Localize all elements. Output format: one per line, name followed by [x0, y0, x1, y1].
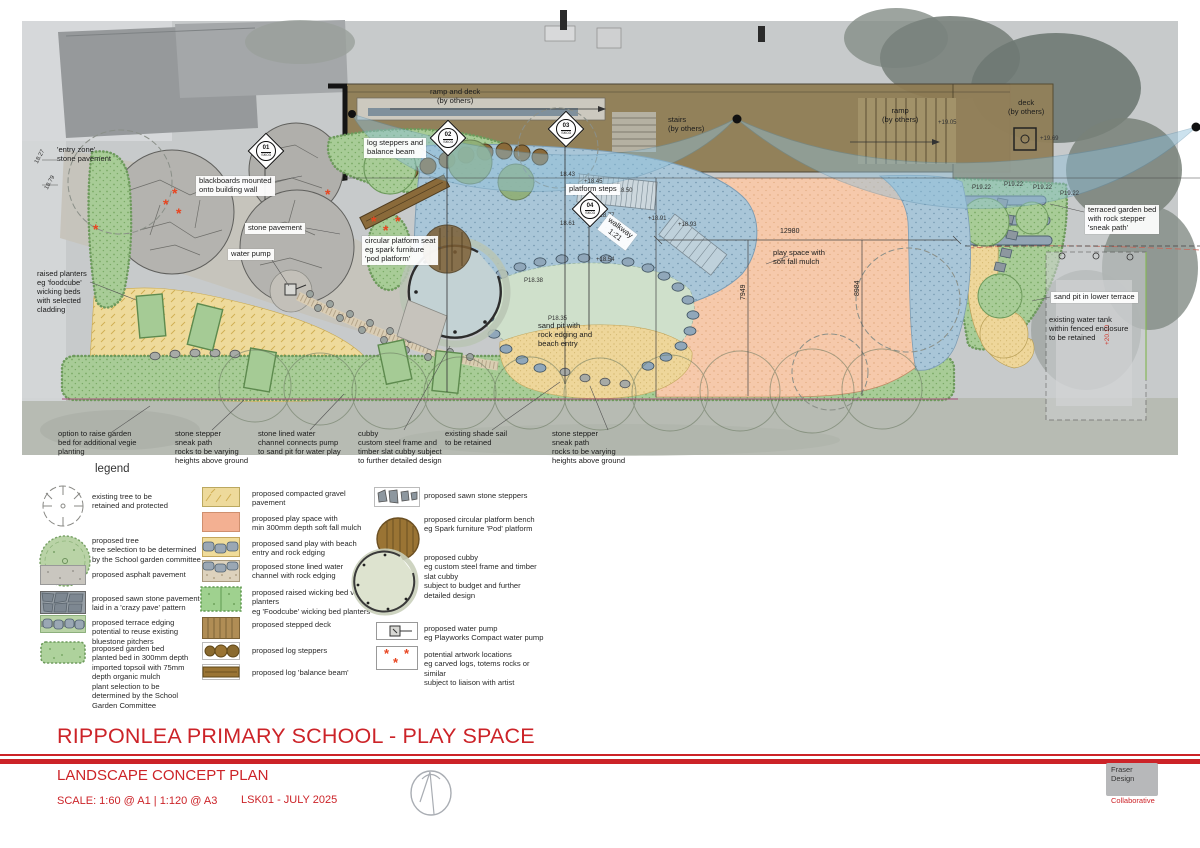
label-terraced-garden-bed: terraced garden bed with rock stepper 's…	[1085, 205, 1159, 234]
label-raised-planters: raised planters eg 'foodcube' wicking be…	[37, 270, 87, 315]
label-water-channel: stone lined water channel connects pump …	[258, 430, 341, 457]
legend-item-text: proposed water pump eg Playworks Compact…	[424, 624, 543, 643]
legend-water-pump-icon	[376, 622, 418, 645]
spot-level: +18.93	[678, 222, 697, 228]
label-entry-zone: 'entry zone' stone pavement	[57, 146, 111, 164]
legend-wicking-bed-icon	[200, 586, 242, 617]
spot-level: +18.54	[596, 257, 615, 263]
legend-log-steppers-icon	[202, 642, 240, 665]
spot-level: +18.91	[648, 216, 667, 222]
legend-asphalt-icon	[40, 565, 86, 590]
legend-item-text: proposed log 'balance beam'	[252, 668, 349, 677]
spot-level: P19.22	[1004, 182, 1023, 188]
title-rule-thick	[0, 759, 1200, 765]
label-stairs: stairs (by others)	[668, 116, 704, 134]
artwork-location-icon: *	[325, 187, 330, 201]
dimension-depth-right: 8984	[854, 280, 861, 296]
logo-line3: Collaborative	[1111, 796, 1155, 805]
legend-stepped-deck-icon	[202, 617, 240, 644]
title-rule-thin	[0, 754, 1200, 756]
artwork-location-icon: *	[383, 223, 388, 237]
legend-item-text: proposed sand play with beach entry and …	[252, 539, 357, 558]
label-water-pump: water pump	[228, 249, 274, 260]
water-pump-symbol	[285, 284, 296, 295]
artwork-location-icon: *	[395, 214, 400, 228]
label-deck-right: deck (by others)	[1008, 99, 1044, 117]
legend-item-text: proposed circular platform bench eg Spar…	[424, 515, 535, 534]
legend-item-text: proposed sawn stone pavement laid in a '…	[92, 594, 200, 613]
legend-heading: legend	[95, 463, 130, 475]
legend-artwork-icon: * * *	[376, 646, 418, 675]
legend-balance-beam-icon	[202, 664, 240, 685]
legend-item-text: proposed log steppers	[252, 646, 327, 655]
plan-sheet: 'entry zone' stone pavement blackboards …	[0, 0, 1200, 848]
dimension-depth-left: 7949	[740, 284, 747, 300]
scale-text: SCALE: 1:60 @ A1 | 1:120 @ A3	[57, 795, 217, 807]
legend-item-text: proposed asphalt pavement	[92, 570, 186, 579]
spot-level: +19.05	[938, 120, 957, 126]
legend-water-channel-icon	[202, 560, 240, 587]
legend-item-text: potential artwork locations eg carved lo…	[424, 650, 530, 688]
legend-item-text: proposed play space with min 300mm depth…	[252, 514, 361, 533]
spot-level: +19.69	[1040, 136, 1059, 142]
spot-level: P19.22	[1060, 191, 1079, 197]
label-sneak-path-1: stone stepper sneak path rocks to be var…	[175, 430, 248, 466]
north-arrow-icon	[408, 768, 454, 816]
legend-item-text: proposed garden bed planted bed in 300mm…	[92, 644, 188, 710]
legend-garden-bed-icon	[40, 641, 86, 669]
sheet-number: LSK01 - JULY 2025	[241, 794, 337, 806]
label-play-space: play space with soft fall mulch	[773, 249, 825, 267]
spot-level: P18.38	[524, 278, 543, 284]
artwork-location-icon: *	[172, 186, 177, 200]
spot-level: P19.22	[1033, 185, 1052, 191]
legend-item-text: proposed tree tree selection to be deter…	[92, 536, 201, 564]
legend-item-text: proposed sawn stone steppers	[424, 491, 527, 500]
legend-existing-tree-icon	[40, 483, 86, 534]
label-cubby: cubby custom steel frame and timber slat…	[358, 430, 442, 466]
artwork-location-icon: *	[371, 214, 376, 228]
logo-line2: Design	[1111, 774, 1158, 783]
legend-item-text: proposed stone lined water channel with …	[252, 562, 343, 581]
label-shade-sail: existing shade sail to be retained	[445, 430, 507, 448]
label-water-tank: existing water tank within fenced enclos…	[1049, 316, 1128, 343]
spot-level: P19.22	[972, 185, 991, 191]
artwork-location-icon: *	[93, 222, 98, 236]
label-blackboards: blackboards mounted onto building wall	[196, 176, 275, 196]
label-ramp-right: ramp (by others)	[882, 107, 918, 125]
legend-stone-steppers-icon	[374, 487, 420, 512]
legend-terrace-edging-icon	[40, 615, 86, 638]
label-log-steppers: log steppers and balance beam	[364, 138, 426, 158]
label-sand-pit: sand pit with rock edging and beach entr…	[538, 322, 592, 349]
legend-item-text: proposed terrace edging potential to reu…	[92, 618, 178, 646]
legend-item-text: existing tree to be retained and protect…	[92, 492, 168, 511]
legend-item-text: proposed stepped deck	[252, 620, 331, 629]
legend-cubby-icon	[350, 547, 420, 622]
spot-level: 18.43	[560, 172, 575, 178]
artwork-location-icon: *	[163, 197, 168, 211]
legend-play-space-icon	[202, 512, 240, 537]
label-ramp-and-deck: ramp and deck (by others)	[430, 88, 480, 106]
drawing-title: LANDSCAPE CONCEPT PLAN	[57, 767, 268, 784]
legend-gravel-icon	[202, 487, 240, 512]
project-title: RIPPONLEA PRIMARY SCHOOL - PLAY SPACE	[57, 724, 535, 749]
company-logo: Fraser Design	[1106, 763, 1158, 796]
legend-item-text: proposed cubby eg custom steel frame and…	[424, 553, 537, 600]
legend-sand-play-icon	[202, 537, 240, 562]
spot-level: 18.61	[560, 221, 575, 227]
dimension-width: 12980	[780, 228, 799, 235]
logo-line1: Fraser	[1111, 765, 1158, 774]
label-circular-platform-seat: circular platform seat eg spark furnitur…	[362, 236, 438, 265]
legend-item-text: proposed compacted gravel pavement	[252, 489, 346, 508]
label-option-raise-bed: option to raise garden bed for additiona…	[58, 430, 137, 457]
label-sneak-path-2: stone stepper sneak path rocks to be var…	[552, 430, 625, 466]
label-stone-pavement: stone pavement	[245, 223, 305, 234]
artwork-location-icon: *	[176, 206, 181, 220]
label-sand-pit-lower: sand pit in lower terrace	[1051, 292, 1138, 303]
